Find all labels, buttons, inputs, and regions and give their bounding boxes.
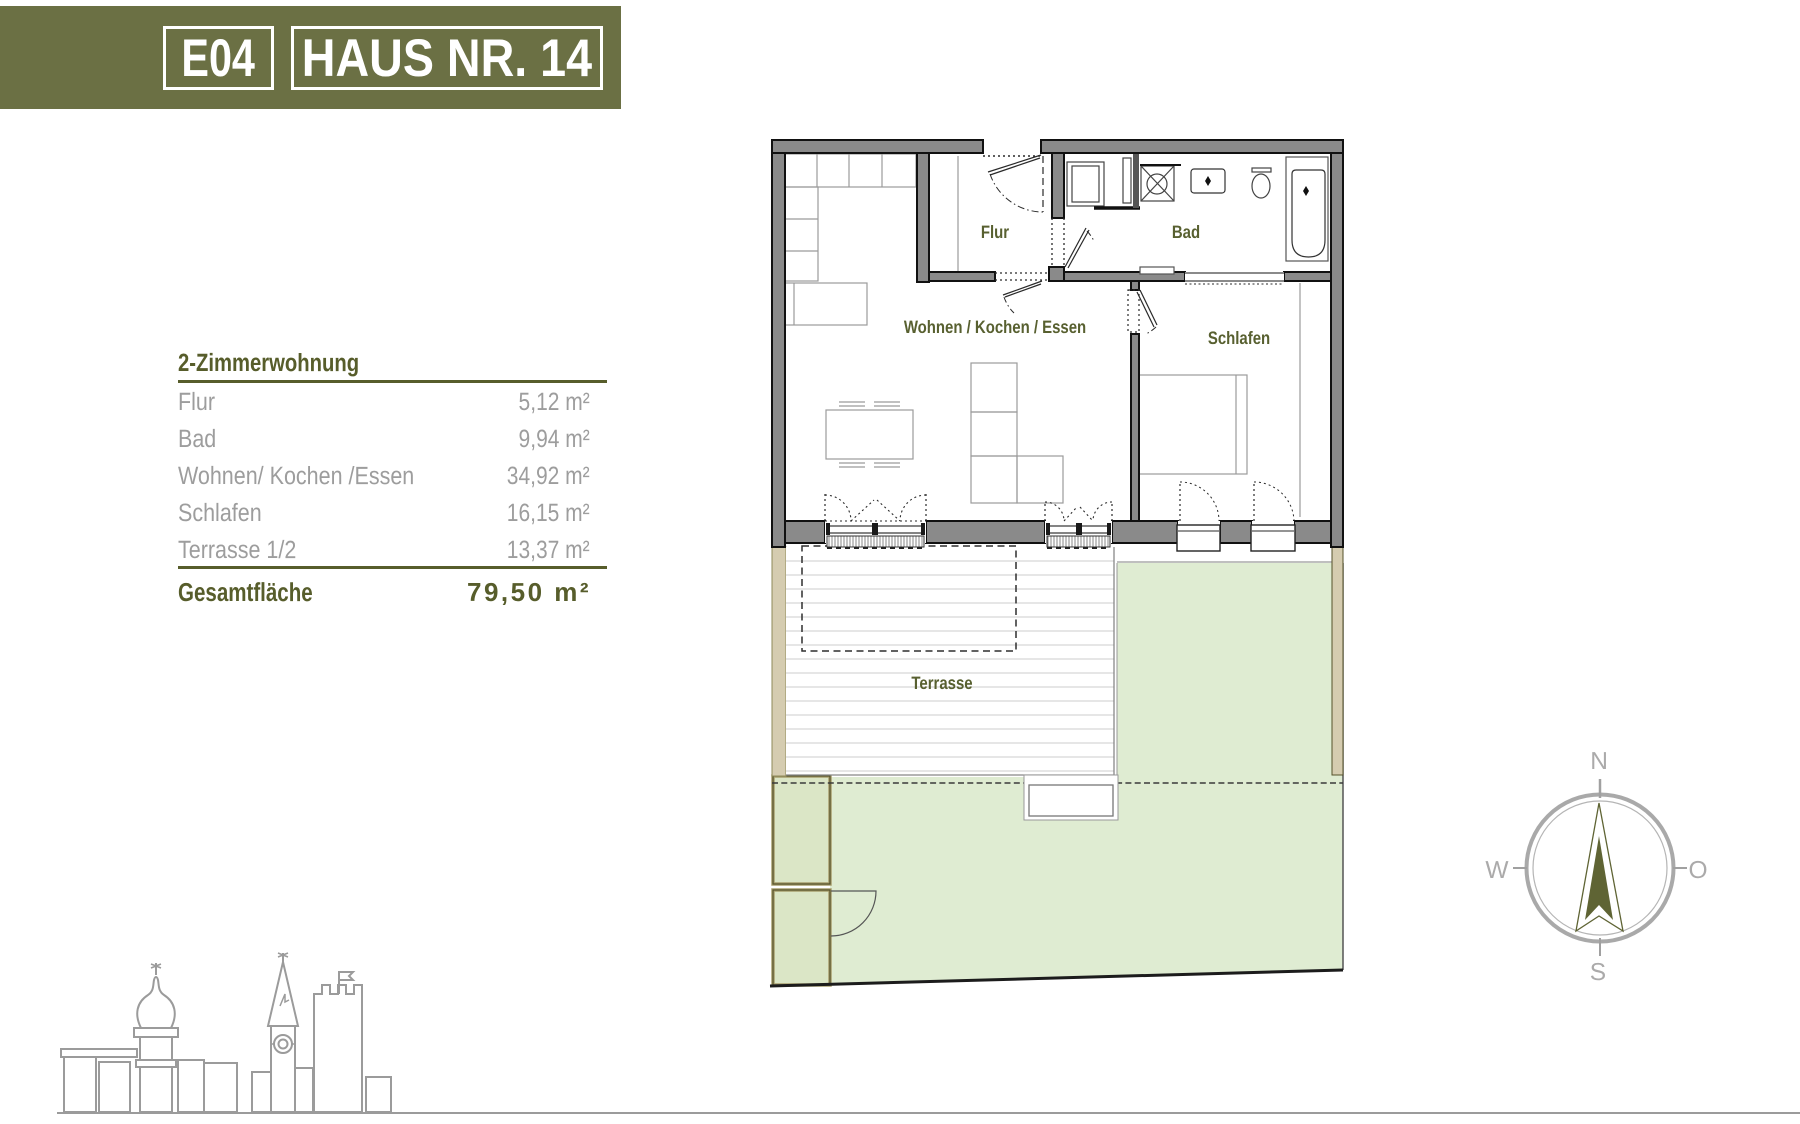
svg-text:Bad: Bad xyxy=(1172,222,1200,242)
svg-text:O: O xyxy=(1688,857,1707,884)
svg-text:N: N xyxy=(1590,748,1608,775)
svg-text:S: S xyxy=(1590,959,1606,986)
svg-text:Flur: Flur xyxy=(981,222,1009,242)
svg-text:W: W xyxy=(1485,857,1509,884)
svg-text:Wohnen / Kochen / Essen: Wohnen / Kochen / Essen xyxy=(904,317,1086,337)
svg-text:Terrasse: Terrasse xyxy=(911,673,972,693)
svg-text:Schlafen: Schlafen xyxy=(1208,328,1270,348)
